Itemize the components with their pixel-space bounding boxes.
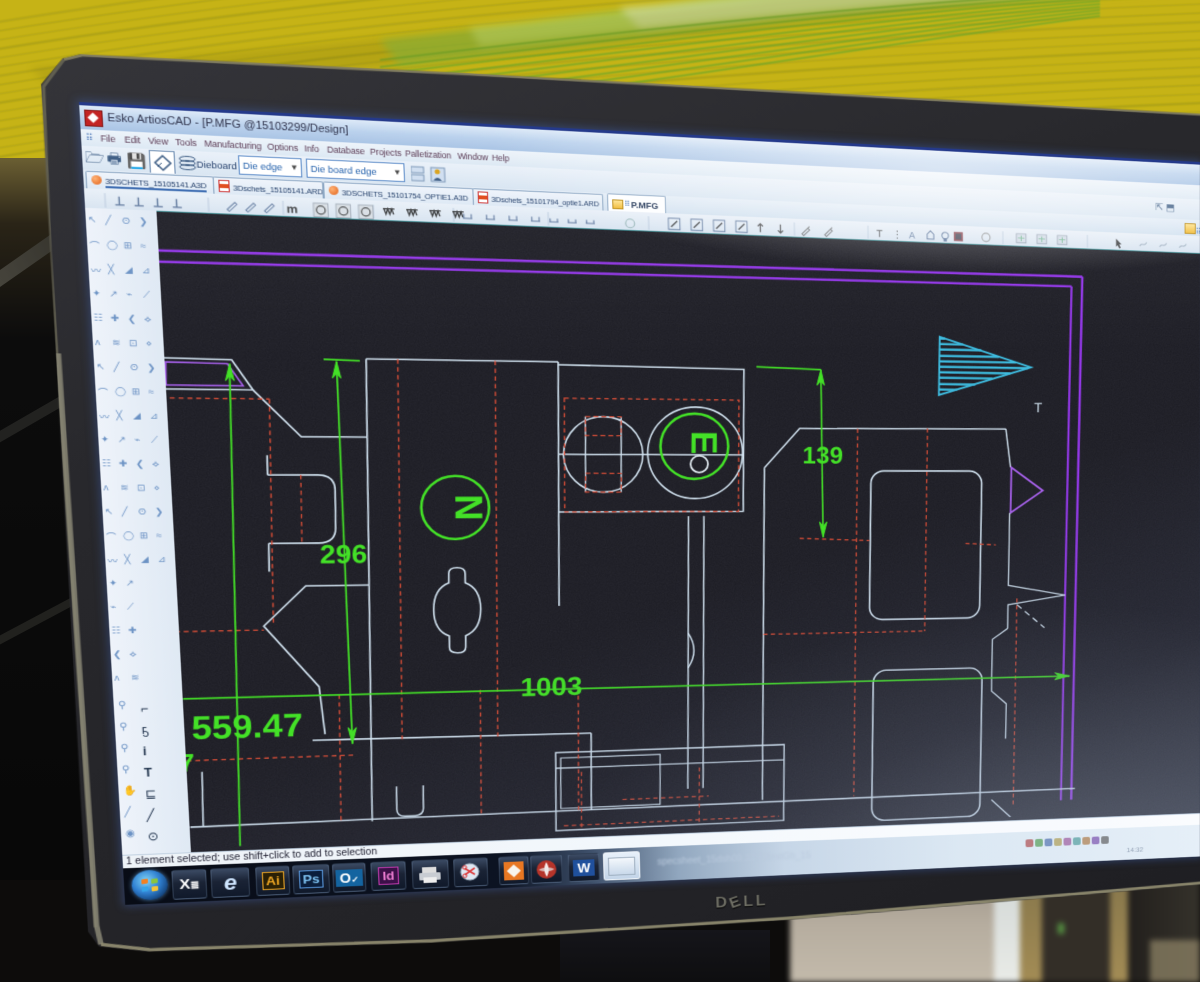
svg-text:m: m	[286, 202, 298, 216]
svg-text:T: T	[876, 228, 883, 240]
svg-text:⋮: ⋮	[892, 228, 902, 240]
svg-text:A: A	[909, 231, 916, 241]
